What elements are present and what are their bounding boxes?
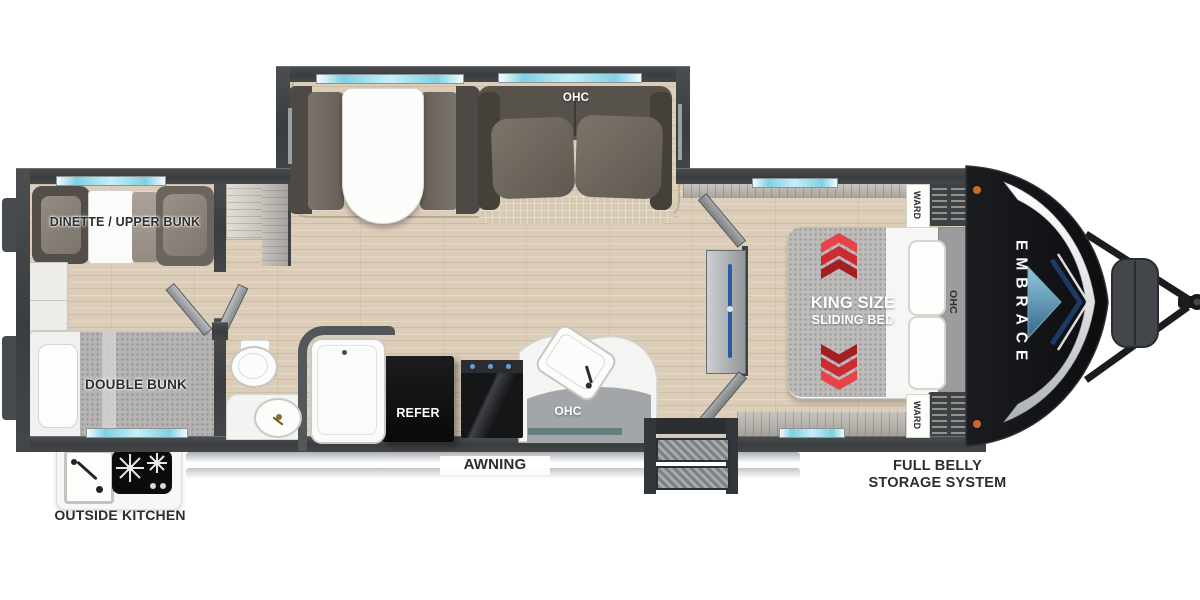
- bathroom-sink-icon: [254, 398, 302, 438]
- bedroom-window-bottom: [779, 428, 845, 438]
- slideout-window-right: [498, 73, 642, 83]
- outside-cooktop-icon: [112, 450, 172, 494]
- slideout-side-window-left: [288, 108, 292, 164]
- marker-light-top: [973, 186, 981, 194]
- bunkroom-cabinet: [226, 180, 264, 240]
- bunkroom-window-top: [56, 176, 166, 186]
- label-full-belly-line2: STORAGE SYSTEM: [855, 475, 1020, 491]
- range-burner-1: [470, 364, 475, 369]
- wall-bottom: [16, 436, 986, 452]
- slideout-window-left: [316, 74, 464, 84]
- tub-inner-rim: [317, 345, 377, 435]
- tv-mount-dot: [727, 306, 733, 312]
- outside-sink-icon: [64, 450, 114, 504]
- bath-tub-icon: [310, 338, 386, 444]
- slideout-side-window-right: [678, 104, 682, 160]
- bunkroom-divider-wall: [214, 176, 226, 272]
- red-chevron-arrows-icon-down: [821, 344, 857, 394]
- red-chevron-arrows-icon: [821, 233, 857, 283]
- tv-console: [706, 250, 746, 374]
- tub-drain: [342, 350, 347, 355]
- booth-bench-left-seat: [308, 92, 344, 210]
- toilet-seat: [238, 353, 268, 379]
- range-cooktop-icon: [461, 360, 523, 438]
- entry-steps-icon: [644, 418, 738, 496]
- label-ward-top: WARD: [906, 184, 928, 226]
- refrigerator: [382, 356, 454, 442]
- rear-side-cabinet: [28, 262, 68, 340]
- outside-sink-knob-2: [96, 486, 103, 493]
- booth-bench-right-back: [456, 86, 480, 214]
- outside-sink-knob-1: [71, 459, 77, 465]
- range-glass-sheen: [461, 373, 523, 438]
- steps-platform: [644, 418, 738, 434]
- label-king-size: KING SIZE: [795, 294, 911, 312]
- booth-table: [342, 88, 424, 224]
- sofa-carpet: [478, 196, 674, 224]
- marker-light-bottom: [973, 420, 981, 428]
- wall-rear: [16, 168, 30, 452]
- rear-side-cabinet-divider: [29, 300, 67, 301]
- label-ward-bottom: WARD: [906, 394, 928, 436]
- label-outside-kitchen: OUTSIDE KITCHEN: [38, 508, 202, 524]
- bunkroom-pantry: [262, 176, 291, 266]
- step-tread-1: [656, 438, 730, 462]
- front-cap-and-hitch: [940, 150, 1200, 470]
- range-burner-2: [488, 364, 493, 369]
- label-ohc-kitchen: OHC: [546, 405, 590, 418]
- label-refer: REFER: [382, 406, 454, 420]
- label-awning: AWNING: [440, 456, 550, 475]
- label-ohc-bedroom: OHC: [941, 272, 963, 332]
- bunkroom-window-bottom: [86, 428, 188, 438]
- outside-sink-faucet: [76, 461, 97, 481]
- label-full-belly-line1: FULL BELLY: [855, 458, 1020, 474]
- label-double-bunk: DOUBLE BUNK: [66, 377, 206, 392]
- step-tread-2: [656, 466, 730, 490]
- label-embrace-brand: EMBRACE: [1008, 226, 1034, 382]
- sofa-cushion-right: [575, 115, 664, 200]
- label-ohc-slideout: OHC: [552, 92, 600, 105]
- range-burner-3: [506, 364, 511, 369]
- label-sliding-bed: SLIDING BED: [795, 313, 911, 327]
- booth-bench-right-seat: [420, 92, 458, 210]
- toilet-icon: [230, 346, 278, 388]
- sofa-cushion-left: [491, 117, 576, 200]
- label-dinette-upper-bunk: DINETTE / UPPER BUNK: [40, 215, 210, 229]
- bath-door-post: [212, 322, 228, 340]
- steps-rail-left: [644, 418, 656, 494]
- bedroom-window-top: [752, 178, 838, 188]
- floorplan-canvas: DINETTE / UPPER BUNK DOUBLE BUNK OHC REF…: [0, 0, 1200, 600]
